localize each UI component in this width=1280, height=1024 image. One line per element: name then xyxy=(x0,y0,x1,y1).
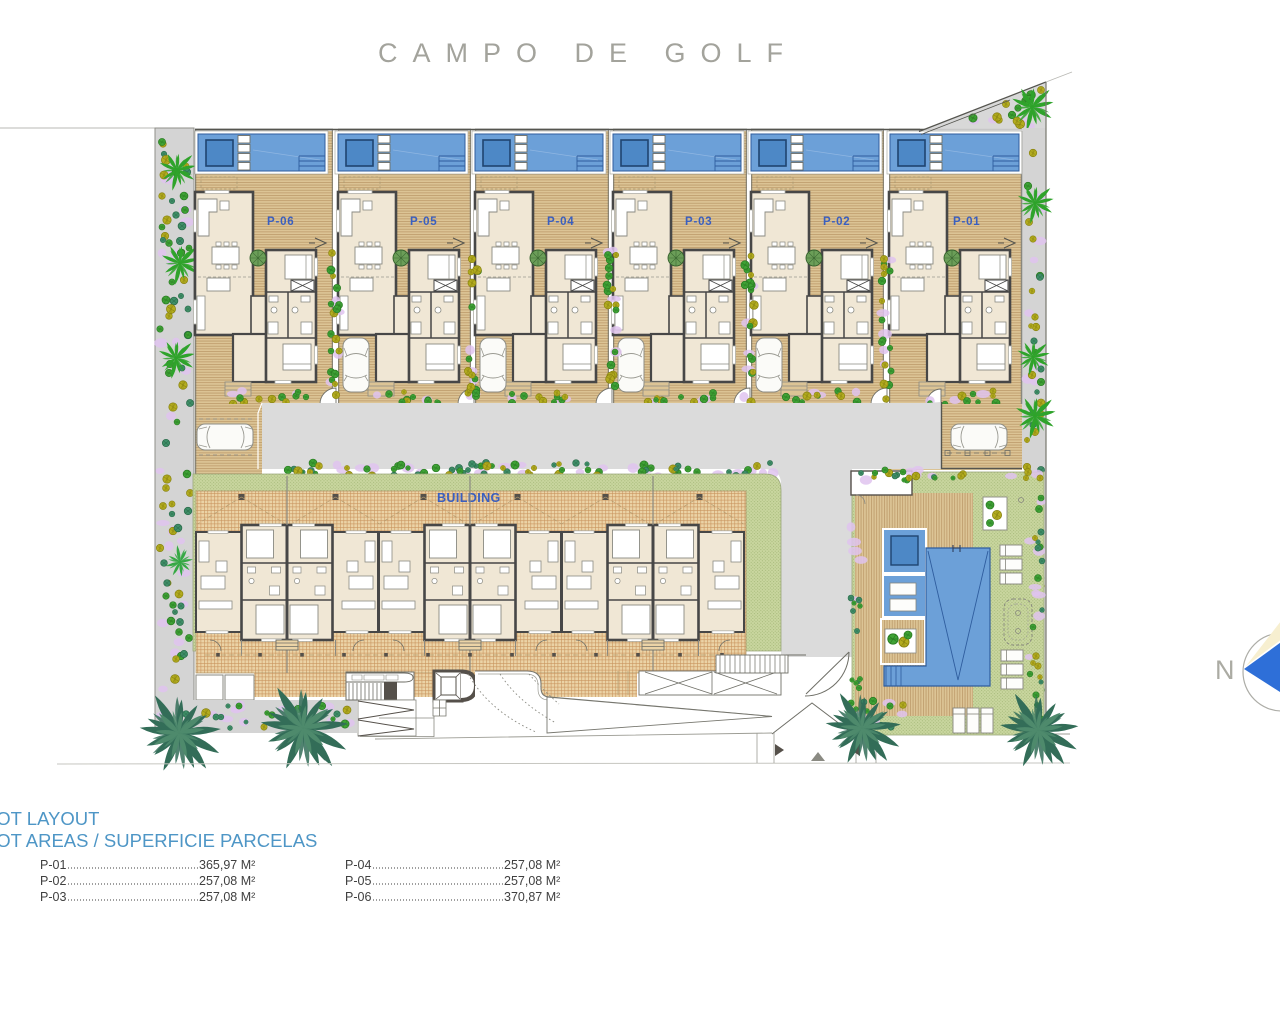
svg-text:P-06: P-06 xyxy=(345,890,371,904)
svg-text:BUILDING: BUILDING xyxy=(437,491,501,505)
svg-text:257,08 M²: 257,08 M² xyxy=(199,874,255,888)
svg-text:P-01: P-01 xyxy=(953,216,981,228)
svg-text:P-02: P-02 xyxy=(40,874,66,888)
svg-text:LOT LAYOUT: LOT LAYOUT xyxy=(0,808,99,829)
svg-text:P-05: P-05 xyxy=(345,874,371,888)
svg-text:P-04: P-04 xyxy=(547,216,575,228)
svg-text:P-03: P-03 xyxy=(40,890,66,904)
svg-text:P-04: P-04 xyxy=(345,858,371,872)
svg-text:257,08 M²: 257,08 M² xyxy=(199,890,255,904)
svg-text:257,08 M²: 257,08 M² xyxy=(504,858,560,872)
svg-text:P-01: P-01 xyxy=(40,858,66,872)
svg-text:P-02: P-02 xyxy=(823,216,851,228)
svg-text:N: N xyxy=(1215,655,1235,685)
svg-text:P-06: P-06 xyxy=(267,216,295,228)
svg-text:LOT AREAS / SUPERFICIE PARCELA: LOT AREAS / SUPERFICIE PARCELAS xyxy=(0,830,317,851)
svg-text:257,08 M²: 257,08 M² xyxy=(504,874,560,888)
svg-text:P-05: P-05 xyxy=(410,216,438,228)
svg-text:CAMPO DE GOLF: CAMPO DE GOLF xyxy=(378,38,798,68)
svg-text:365,97 M²: 365,97 M² xyxy=(199,858,255,872)
svg-text:370,87 M²: 370,87 M² xyxy=(504,890,560,904)
svg-text:P-03: P-03 xyxy=(685,216,713,228)
